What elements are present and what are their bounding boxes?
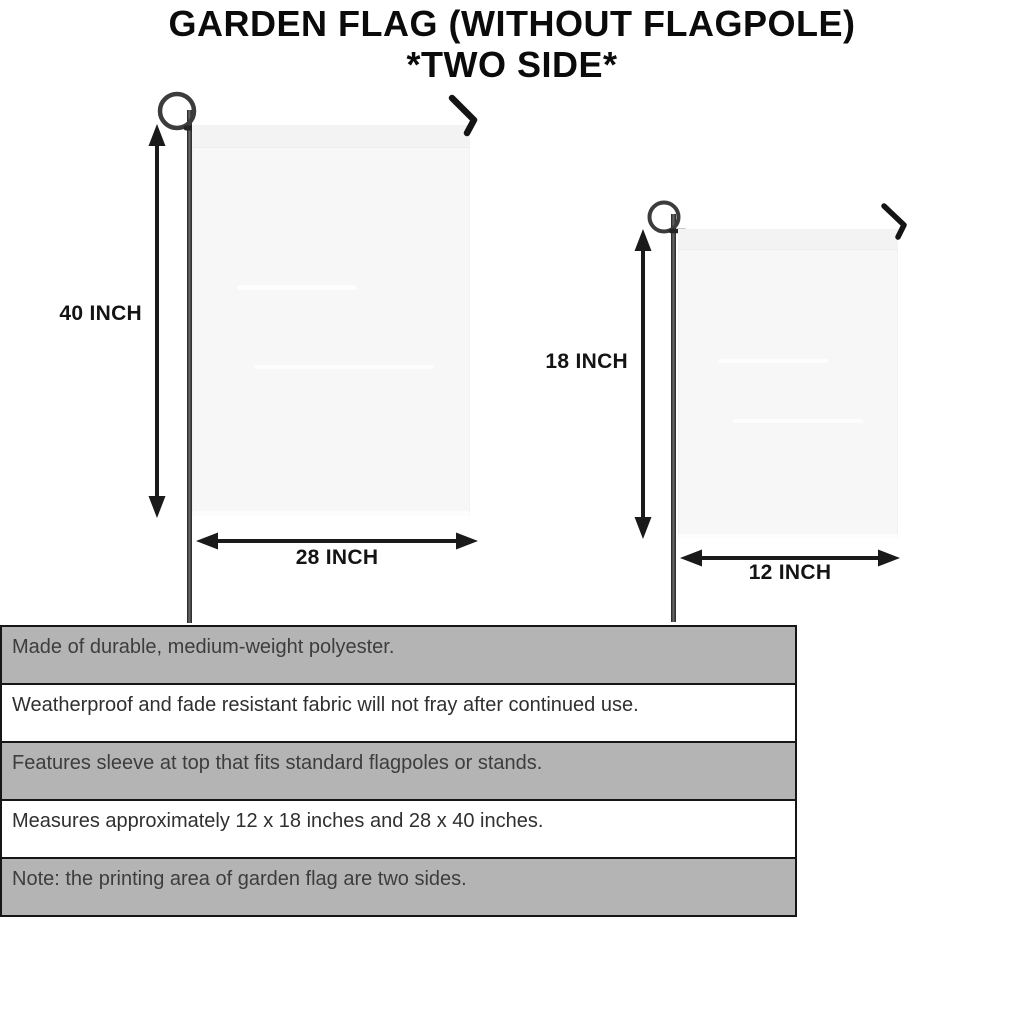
title-line-2: *TWO SIDE*	[0, 44, 1024, 85]
small-pole-hook-icon	[880, 202, 910, 242]
small-width-label: 12 INCH	[680, 562, 900, 584]
fabric-highlight	[733, 419, 863, 423]
feature-row: Weatherproof and fade resistant fabric w…	[2, 685, 795, 743]
page-title: GARDEN FLAG (WITHOUT FLAGPOLE) *TWO SIDE…	[0, 3, 1024, 85]
small-flag-canvas	[678, 229, 898, 538]
large-flag-canvas	[192, 125, 470, 516]
large-height-label: 40 INCH	[48, 303, 142, 325]
small-height-label: 18 INCH	[534, 351, 628, 373]
feature-row: Note: the printing area of garden flag a…	[2, 859, 795, 915]
fabric-highlight	[718, 359, 828, 363]
fabric-highlight	[254, 365, 434, 369]
large-flag-sleeve	[192, 125, 470, 148]
feature-row: Measures approximately 12 x 18 inches an…	[2, 801, 795, 859]
fabric-highlight	[237, 285, 357, 290]
fabric-highlight	[678, 534, 898, 538]
feature-row: Features sleeve at top that fits standar…	[2, 743, 795, 801]
large-pole-hook-icon	[447, 93, 481, 137]
small-flag-sleeve	[678, 229, 898, 250]
garden-flag-size-infographic: GARDEN FLAG (WITHOUT FLAGPOLE) *TWO SIDE…	[0, 0, 1024, 1024]
title-line-1: GARDEN FLAG (WITHOUT FLAGPOLE)	[0, 3, 1024, 44]
large-height-arrow	[146, 124, 168, 518]
small-flagpole	[671, 214, 676, 622]
small-height-arrow	[632, 229, 654, 539]
fabric-highlight	[192, 511, 470, 516]
features-table: Made of durable, medium-weight polyester…	[0, 625, 797, 917]
large-width-label: 28 INCH	[196, 547, 478, 569]
feature-row: Made of durable, medium-weight polyester…	[2, 627, 795, 685]
